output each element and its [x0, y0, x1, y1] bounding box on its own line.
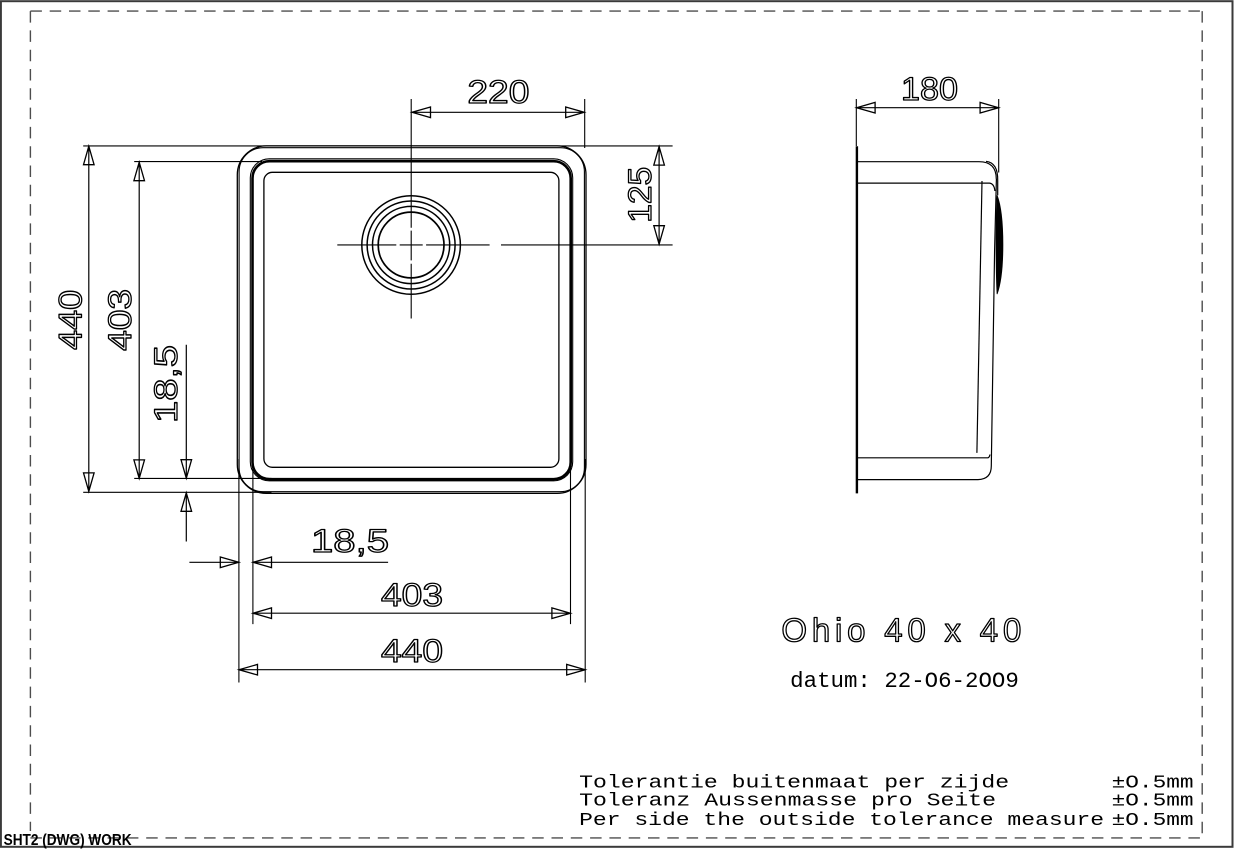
svg-text:440: 440: [52, 290, 88, 350]
svg-text:Tolerantie buitenmaat per zijd: Tolerantie buitenmaat per zijde: [579, 773, 1009, 793]
svg-text:datum: 22-O6-2OO9: datum: 22-O6-2OO9: [790, 669, 1019, 694]
svg-text:125: 125: [622, 167, 658, 223]
svg-text:Ohio 40 x 40: Ohio 40 x 40: [781, 612, 1026, 649]
svg-text:18,5: 18,5: [311, 523, 389, 559]
svg-text:SHT2 (DWG) WORK: SHT2 (DWG) WORK: [4, 832, 133, 849]
svg-text:440: 440: [381, 633, 443, 669]
svg-text:Per side the outside tolerance: Per side the outside tolerance measure: [579, 811, 1104, 831]
svg-text:±O.5mm: ±O.5mm: [1112, 792, 1194, 812]
svg-text:±O.5mm: ±O.5mm: [1112, 811, 1194, 831]
svg-text:Toleranz Aussenmasse pro Seite: Toleranz Aussenmasse pro Seite: [579, 792, 996, 812]
svg-text:220: 220: [467, 74, 529, 110]
svg-text:180: 180: [901, 71, 958, 107]
svg-text:±O.5mm: ±O.5mm: [1112, 773, 1194, 793]
svg-text:403: 403: [381, 577, 443, 613]
svg-text:18,5: 18,5: [148, 345, 184, 423]
svg-text:403: 403: [102, 289, 138, 351]
